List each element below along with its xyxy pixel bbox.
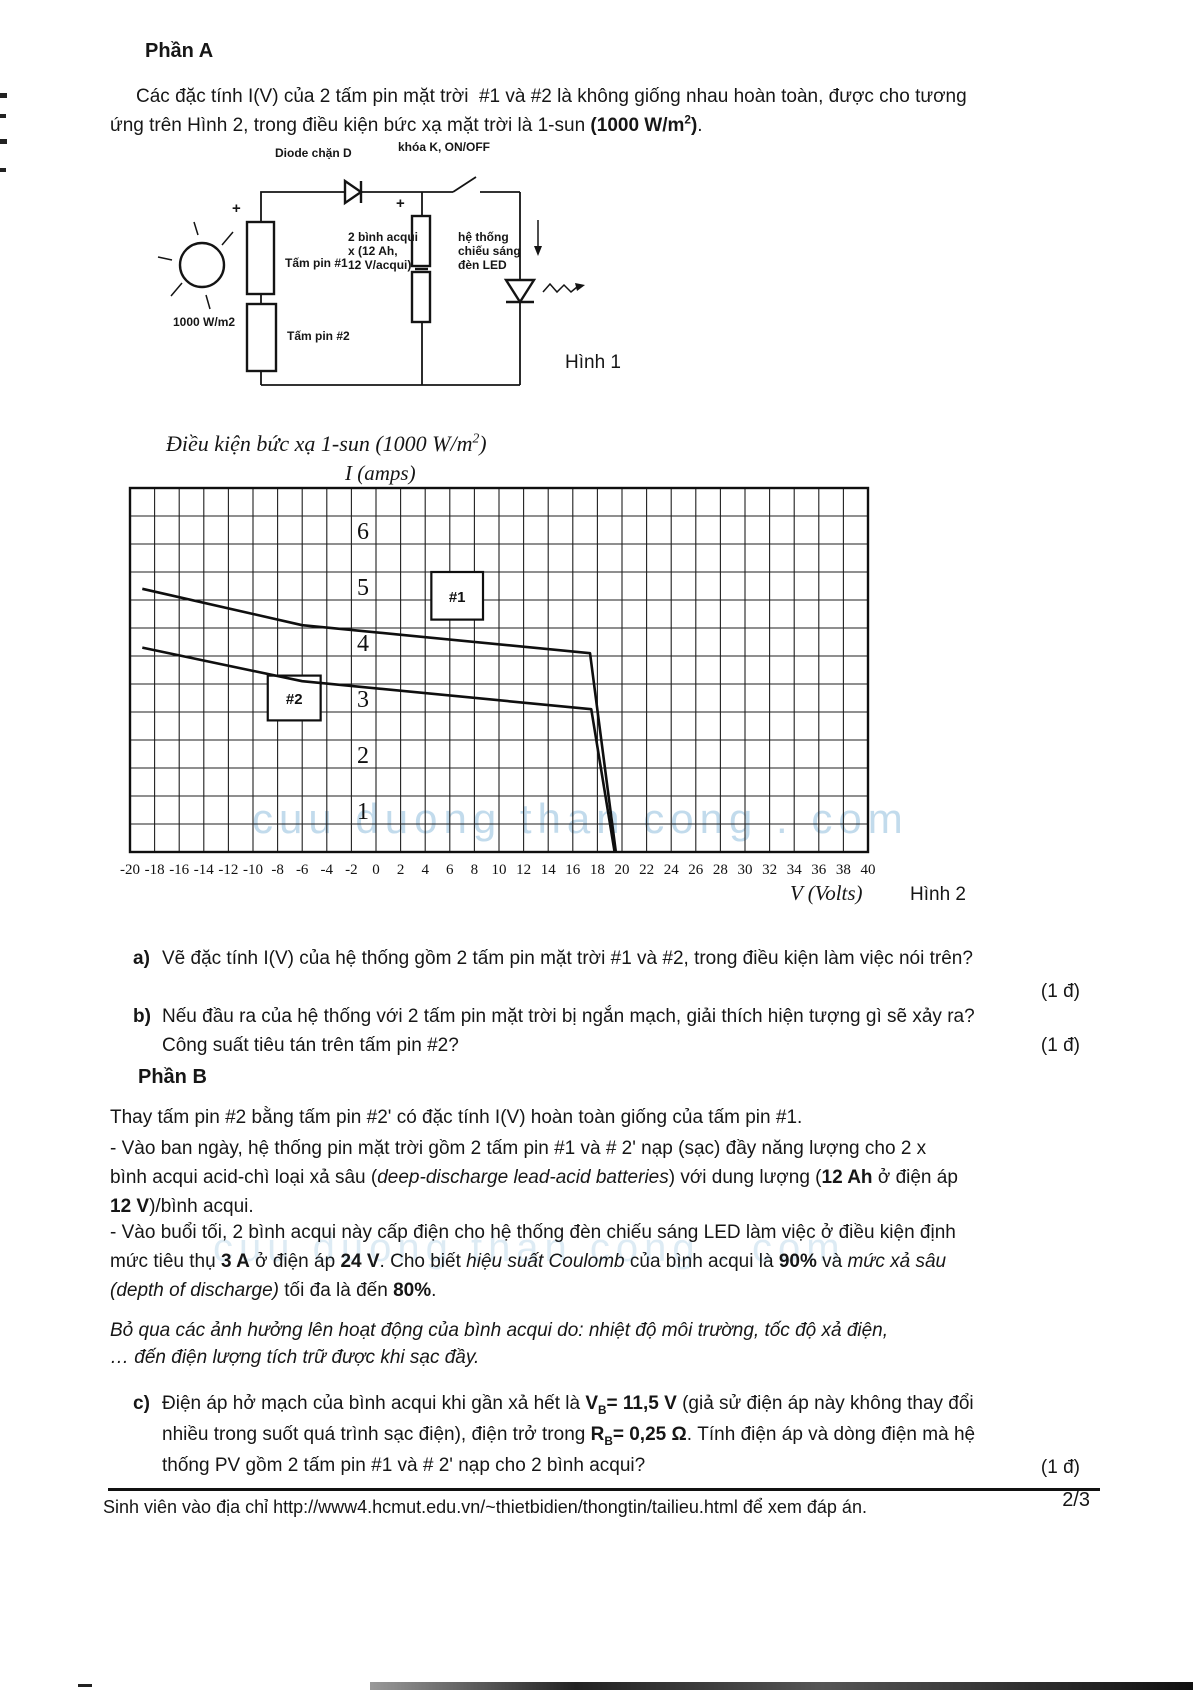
svg-text:40: 40 bbox=[861, 862, 876, 878]
svg-text:-14: -14 bbox=[194, 862, 214, 878]
svg-text:22: 22 bbox=[639, 862, 654, 878]
question-c-points: (1 đ) bbox=[1041, 1452, 1080, 1483]
svg-text:#2: #2 bbox=[286, 691, 303, 708]
svg-text:2: 2 bbox=[357, 743, 369, 769]
scan-artifact-bottom-edge bbox=[370, 1682, 1193, 1690]
svg-text:8: 8 bbox=[471, 862, 479, 878]
question-c-text: Điện áp hở mạch của bình acqui khi gần x… bbox=[162, 1388, 1080, 1481]
panel2-label: Tấm pin #2 bbox=[287, 329, 350, 343]
svg-text:6: 6 bbox=[446, 862, 454, 878]
page-number: 2/3 bbox=[1030, 1489, 1090, 1512]
part-b-note-paragraph: Bỏ qua các ảnh hưởng lên hoạt động của b… bbox=[110, 1317, 1085, 1371]
part-b-paragraph-3: - Vào buổi tối, 2 bình acqui này cấp điệ… bbox=[110, 1218, 1085, 1305]
panel-plus-sign: + bbox=[232, 200, 241, 217]
part-a-heading: Phần A bbox=[145, 40, 213, 63]
question-c-label: c) bbox=[133, 1388, 150, 1419]
battery-plus-sign: + bbox=[396, 195, 405, 212]
chart-x-axis-title: V (Volts) bbox=[790, 881, 863, 906]
svg-text:38: 38 bbox=[836, 862, 851, 878]
figure1-circuit: Diode chặn D khóa K, ON/OFF + + Tấm pin … bbox=[130, 140, 690, 400]
svg-text:-12: -12 bbox=[218, 862, 238, 878]
irradiance-label: 1000 W/m2 bbox=[173, 315, 235, 329]
led-symbol bbox=[506, 280, 534, 302]
svg-text:4: 4 bbox=[421, 862, 429, 878]
svg-text:-20: -20 bbox=[120, 862, 140, 878]
svg-text:30: 30 bbox=[738, 862, 753, 878]
svg-text:36: 36 bbox=[811, 862, 827, 878]
svg-text:-8: -8 bbox=[271, 862, 284, 878]
diode-symbol bbox=[345, 181, 361, 203]
question-a-text: Vẽ đặc tính I(V) của hệ thống gồm 2 tấm … bbox=[162, 944, 1080, 973]
question-b-text: Nếu đầu ra của hệ thống với 2 tấm pin mặ… bbox=[162, 1002, 1080, 1060]
part-b-heading: Phần B bbox=[138, 1066, 207, 1089]
svg-text:34: 34 bbox=[787, 862, 803, 878]
part-b-paragraph-1: Thay tấm pin #2 bằng tấm pin #2' có đặc … bbox=[110, 1103, 1085, 1132]
svg-text:-6: -6 bbox=[296, 862, 309, 878]
svg-text:32: 32 bbox=[762, 862, 777, 878]
led-system-label: hệ thống chiếu sáng đèn LED bbox=[458, 230, 542, 272]
question-b: b) Nếu đầu ra của hệ thống với 2 tấm pin… bbox=[133, 1002, 1080, 1060]
scan-artifact bbox=[78, 1684, 92, 1687]
battery-label: 2 bình acqui x (12 Ah, 12 V/acqui) bbox=[348, 230, 426, 272]
svg-text:24: 24 bbox=[664, 862, 680, 878]
question-b-points: (1 đ) bbox=[1041, 1031, 1080, 1060]
scan-artifact bbox=[0, 168, 6, 172]
svg-text:16: 16 bbox=[565, 862, 581, 878]
svg-text:-18: -18 bbox=[145, 862, 165, 878]
svg-text:26: 26 bbox=[688, 862, 704, 878]
question-a-label: a) bbox=[133, 944, 150, 973]
question-a: a) Vẽ đặc tính I(V) của hệ thống gồm 2 t… bbox=[133, 944, 1080, 973]
svg-text:12: 12 bbox=[516, 862, 531, 878]
intro-paragraph: Các đặc tính I(V) của 2 tấm pin mặt trời… bbox=[110, 82, 1085, 140]
svg-text:14: 14 bbox=[541, 862, 557, 878]
question-b-label: b) bbox=[133, 1002, 151, 1031]
svg-text:1: 1 bbox=[357, 799, 369, 825]
svg-text:20: 20 bbox=[615, 862, 630, 878]
panel1-label: Tấm pin #1 bbox=[285, 256, 348, 270]
svg-text:28: 28 bbox=[713, 862, 728, 878]
footer-rule bbox=[108, 1488, 1100, 1491]
sun-icon bbox=[158, 222, 233, 309]
svg-text:2: 2 bbox=[397, 862, 405, 878]
switch-label: khóa K, ON/OFF bbox=[398, 140, 490, 154]
solar-panel-1 bbox=[247, 222, 274, 294]
svg-text:6: 6 bbox=[357, 519, 369, 545]
solar-panel-2 bbox=[247, 304, 276, 371]
svg-text:3: 3 bbox=[357, 687, 369, 713]
svg-text:-2: -2 bbox=[345, 862, 358, 878]
svg-text:0: 0 bbox=[372, 862, 380, 878]
svg-text:18: 18 bbox=[590, 862, 605, 878]
footer-note: Sinh viên vào địa chỉ http://www4.hcmut.… bbox=[103, 1497, 867, 1518]
scan-artifact bbox=[0, 93, 7, 98]
svg-text:#1: #1 bbox=[449, 589, 466, 606]
svg-text:4: 4 bbox=[357, 631, 369, 657]
svg-text:-4: -4 bbox=[321, 862, 334, 878]
light-squiggle-icon bbox=[543, 283, 585, 292]
diode-label: Diode chặn D bbox=[275, 146, 352, 160]
svg-text:-10: -10 bbox=[243, 862, 263, 878]
part-b-paragraph-2: - Vào ban ngày, hệ thống pin mặt trời gồ… bbox=[110, 1134, 1085, 1221]
svg-text:5: 5 bbox=[357, 575, 369, 601]
question-c: c) Điện áp hở mạch của bình acqui khi gầ… bbox=[133, 1388, 1080, 1481]
scan-artifact bbox=[0, 114, 6, 118]
figure2-caption: Hình 2 bbox=[910, 884, 966, 906]
scan-artifact bbox=[0, 139, 7, 144]
figure1-caption: Hình 1 bbox=[565, 352, 621, 374]
svg-text:-16: -16 bbox=[169, 862, 189, 878]
scanned-exam-page: Phần A Các đặc tính I(V) của 2 tấm pin m… bbox=[0, 0, 1193, 1690]
svg-text:10: 10 bbox=[492, 862, 507, 878]
switch-symbol bbox=[453, 177, 476, 192]
iv-chart: 123456-20-18-16-14-12-10-8-6-4-202468101… bbox=[118, 430, 890, 900]
